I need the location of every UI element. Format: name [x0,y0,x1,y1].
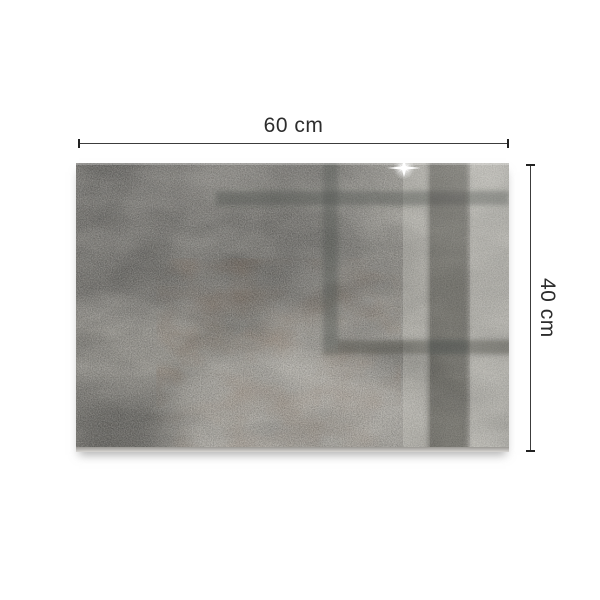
width-dimension-line [78,143,509,144]
height-dimension-label: 40 cm [535,278,559,338]
height-dimension-label-box: 40 cm [534,164,560,452]
width-dimension-tick-left [78,139,80,148]
glass-panel-image [76,163,509,452]
width-dimension-label: 60 cm [78,112,509,140]
product-image-canvas: 60 cm 40 cm [0,0,600,600]
height-dimension-line [530,164,531,452]
width-dimension-tick-right [507,139,509,148]
